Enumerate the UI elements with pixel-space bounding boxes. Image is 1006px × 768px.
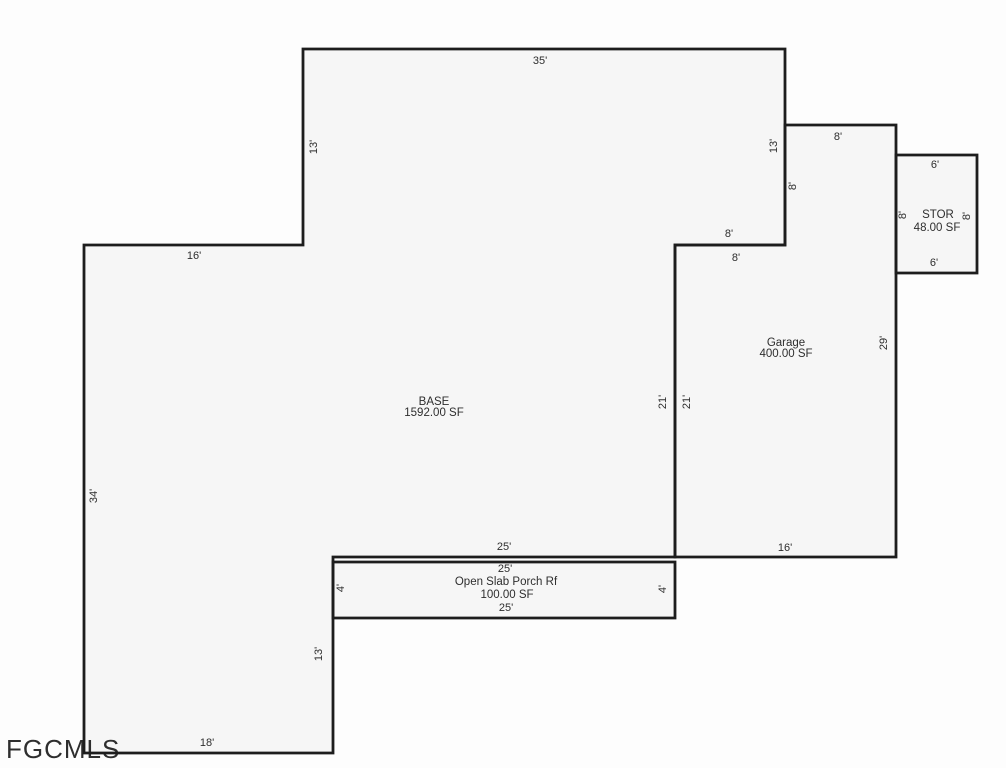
structure-label-porch: Open Slab Porch Rf (455, 576, 558, 588)
dimension-label: 8' (961, 212, 973, 220)
dimension-label: 4' (657, 585, 669, 593)
dimension-label: 34' (88, 489, 100, 503)
dimension-label: 25' (499, 602, 513, 614)
dimension-label: 21' (681, 395, 693, 409)
structure-label-garage: 400.00 SF (759, 348, 812, 360)
dimension-label: 13' (768, 139, 780, 153)
structure-label-porch: 100.00 SF (480, 589, 533, 601)
dimension-label: 25' (497, 541, 511, 553)
floor-plan-svg: FGCMLSOpen Slab Porch Rf100.00 SFBASE159… (0, 0, 1006, 768)
dimension-label: 8' (732, 252, 740, 264)
page: { "canvas": { "width": 1006, "height": 7… (0, 0, 1006, 768)
structure-label-storage: STOR (922, 209, 954, 221)
dimension-label: 16' (187, 250, 201, 262)
dimension-label: 21' (657, 395, 669, 409)
dimension-label: 6' (931, 159, 939, 171)
dimension-label: 29' (878, 336, 890, 350)
dimension-label: 13' (308, 140, 320, 154)
dimension-label: 18' (200, 737, 214, 749)
dimension-label: 8' (787, 182, 799, 190)
dimension-label: 35' (533, 55, 547, 67)
floor-plan: FGCMLSOpen Slab Porch Rf100.00 SFBASE159… (0, 0, 1006, 768)
dimension-label: 8' (834, 131, 842, 143)
structure-label-storage: 48.00 SF (914, 222, 961, 234)
dimension-label: 8' (897, 211, 909, 219)
dimension-label: 8' (725, 228, 733, 240)
dimension-label: 25' (498, 563, 512, 575)
dimension-label: 16' (778, 542, 792, 554)
dimension-label: 13' (313, 647, 325, 661)
structure-label-base: 1592.00 SF (404, 407, 463, 419)
dimension-label: 4' (335, 584, 347, 592)
dimension-label: 6' (930, 257, 938, 269)
watermark-text: FGCMLS (6, 734, 120, 764)
